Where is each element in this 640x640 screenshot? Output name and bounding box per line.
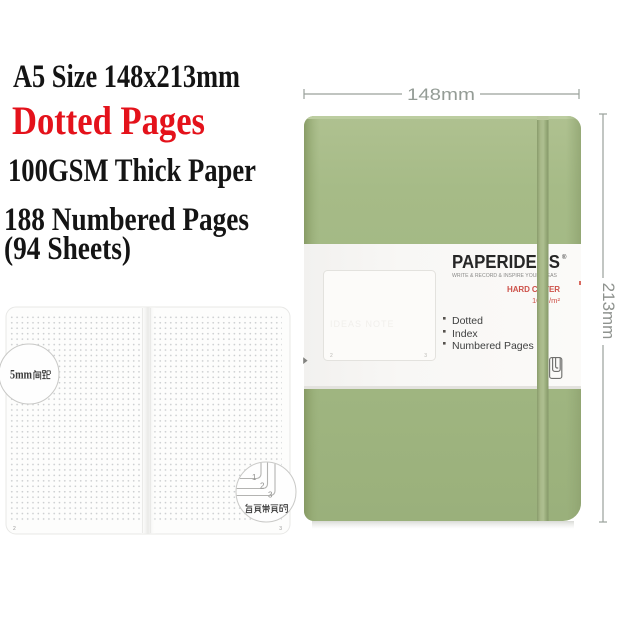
svg-text:A5 Size 148x213mm: A5 Size 148x213mm — [13, 59, 240, 95]
svg-text:2: 2 — [330, 353, 333, 359]
svg-text:2: 2 — [13, 526, 16, 532]
svg-text:®: ® — [562, 254, 567, 261]
svg-text:100GSM Thick Paper: 100GSM Thick Paper — [8, 153, 256, 189]
svg-text:3: 3 — [424, 353, 427, 359]
svg-text:213mm: 213mm — [599, 283, 618, 340]
svg-text:148mm: 148mm — [407, 85, 475, 104]
svg-text:2: 2 — [260, 482, 265, 491]
svg-text:HARD COVER: HARD COVER — [507, 285, 560, 294]
svg-text:3: 3 — [279, 526, 282, 532]
svg-text:1: 1 — [252, 473, 257, 482]
svg-text:Dotted: Dotted — [452, 315, 483, 327]
svg-text:5mm: 5mm — [10, 368, 32, 382]
svg-text:Index: Index — [452, 328, 478, 340]
svg-text:(94 Sheets): (94 Sheets) — [4, 231, 131, 267]
svg-text:3: 3 — [268, 491, 273, 500]
svg-text:Dotted Pages: Dotted Pages — [12, 98, 205, 143]
svg-text:Numbered Pages: Numbered Pages — [452, 340, 534, 352]
svg-text:IDEAS NOTE: IDEAS NOTE — [330, 319, 395, 329]
